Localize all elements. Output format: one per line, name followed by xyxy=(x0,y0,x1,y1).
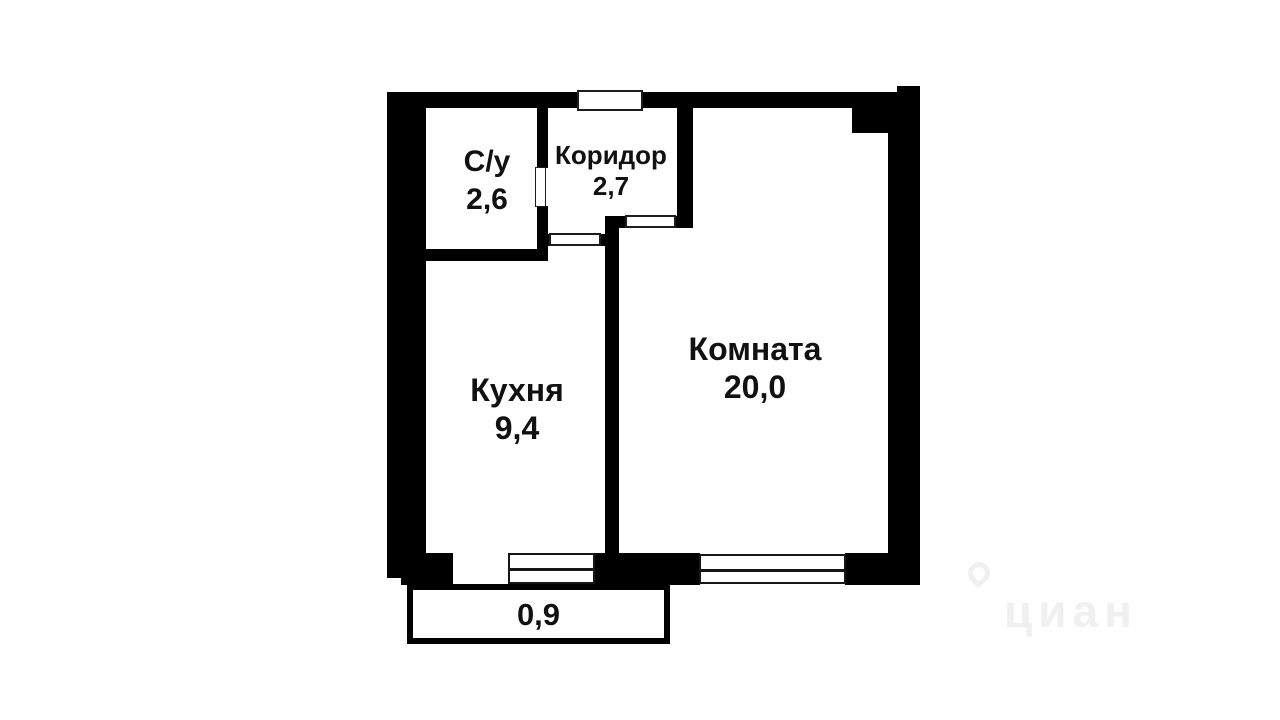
bathroom-door xyxy=(535,167,546,207)
bathroom-name: С/у xyxy=(464,143,511,181)
kitchen-area: 9,4 xyxy=(470,409,564,447)
room-window-pane-line xyxy=(701,569,844,572)
living-room-name: Комната xyxy=(689,330,822,368)
wall-top-right-step xyxy=(897,86,920,93)
room-window xyxy=(699,554,846,584)
wall-right xyxy=(888,108,920,585)
corridor-label: Коридор 2,7 xyxy=(555,140,667,202)
corridor-name: Коридор xyxy=(555,140,667,171)
bathroom-label: С/у 2,6 xyxy=(464,143,511,219)
wall-left xyxy=(387,92,426,578)
kitchen-door xyxy=(549,233,601,246)
wall-bottom-middle-segment xyxy=(594,553,700,585)
kitchen-label: Кухня 9,4 xyxy=(470,371,564,447)
room-door xyxy=(625,215,676,228)
balcony-outline: 0,9 xyxy=(407,584,670,644)
living-room-area: 20,0 xyxy=(689,368,822,406)
kitchen-name: Кухня xyxy=(470,371,564,409)
wall-top-right-segment xyxy=(642,92,920,108)
kitchen-window xyxy=(508,553,595,584)
living-room-label: Комната 20,0 xyxy=(689,330,822,406)
watermark: циан xyxy=(952,552,1192,652)
wall-bathroom-bottom xyxy=(426,249,548,261)
entrance-door xyxy=(577,90,643,111)
wall-room-left xyxy=(677,108,693,228)
watermark-text: циан xyxy=(1004,584,1138,638)
kitchen-window-pane-line xyxy=(510,568,593,571)
floor-plan: 0,9 С/у 2,6 Коридор 2,7 Кухня 9,4 Комнат… xyxy=(0,0,1280,720)
wall-kitchen-room-divider xyxy=(605,216,619,553)
wall-bathroom-right-upper xyxy=(537,108,548,168)
watermark-bird-icon xyxy=(964,558,995,589)
wall-corner-notch xyxy=(852,108,920,133)
balcony-area-label: 0,9 xyxy=(517,595,560,633)
bathroom-area: 2,6 xyxy=(464,181,511,219)
corridor-area: 2,7 xyxy=(555,171,667,202)
wall-bottom-left-segment xyxy=(401,553,453,585)
wall-bottom-right-segment xyxy=(845,553,920,585)
